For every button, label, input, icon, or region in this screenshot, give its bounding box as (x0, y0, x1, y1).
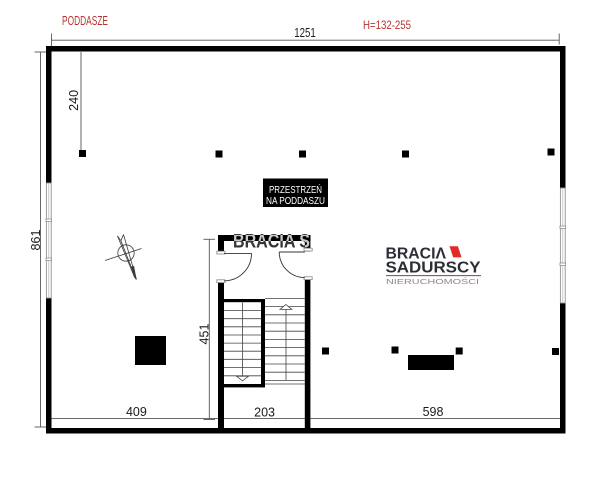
svg-text:NA PODDASZU: NA PODDASZU (266, 196, 325, 207)
svg-text:SADURSCY: SADURSCY (386, 259, 481, 276)
svg-text:PODDASZE: PODDASZE (62, 14, 108, 28)
svg-text:BRACIA S: BRACIA S (233, 232, 310, 253)
svg-text:PRZESTRZEŃ: PRZESTRZEŃ (269, 183, 322, 196)
svg-text:451: 451 (198, 324, 212, 345)
svg-text:861: 861 (29, 230, 43, 251)
svg-text:203: 203 (254, 406, 275, 420)
svg-text:H=132-255: H=132-255 (363, 18, 411, 32)
svg-text:240: 240 (67, 90, 81, 111)
svg-text:409: 409 (126, 405, 147, 419)
svg-text:NIERUCHOMOŚCI: NIERUCHOMOŚCI (386, 277, 479, 286)
svg-text:1251: 1251 (294, 26, 316, 40)
svg-text:598: 598 (423, 405, 444, 419)
